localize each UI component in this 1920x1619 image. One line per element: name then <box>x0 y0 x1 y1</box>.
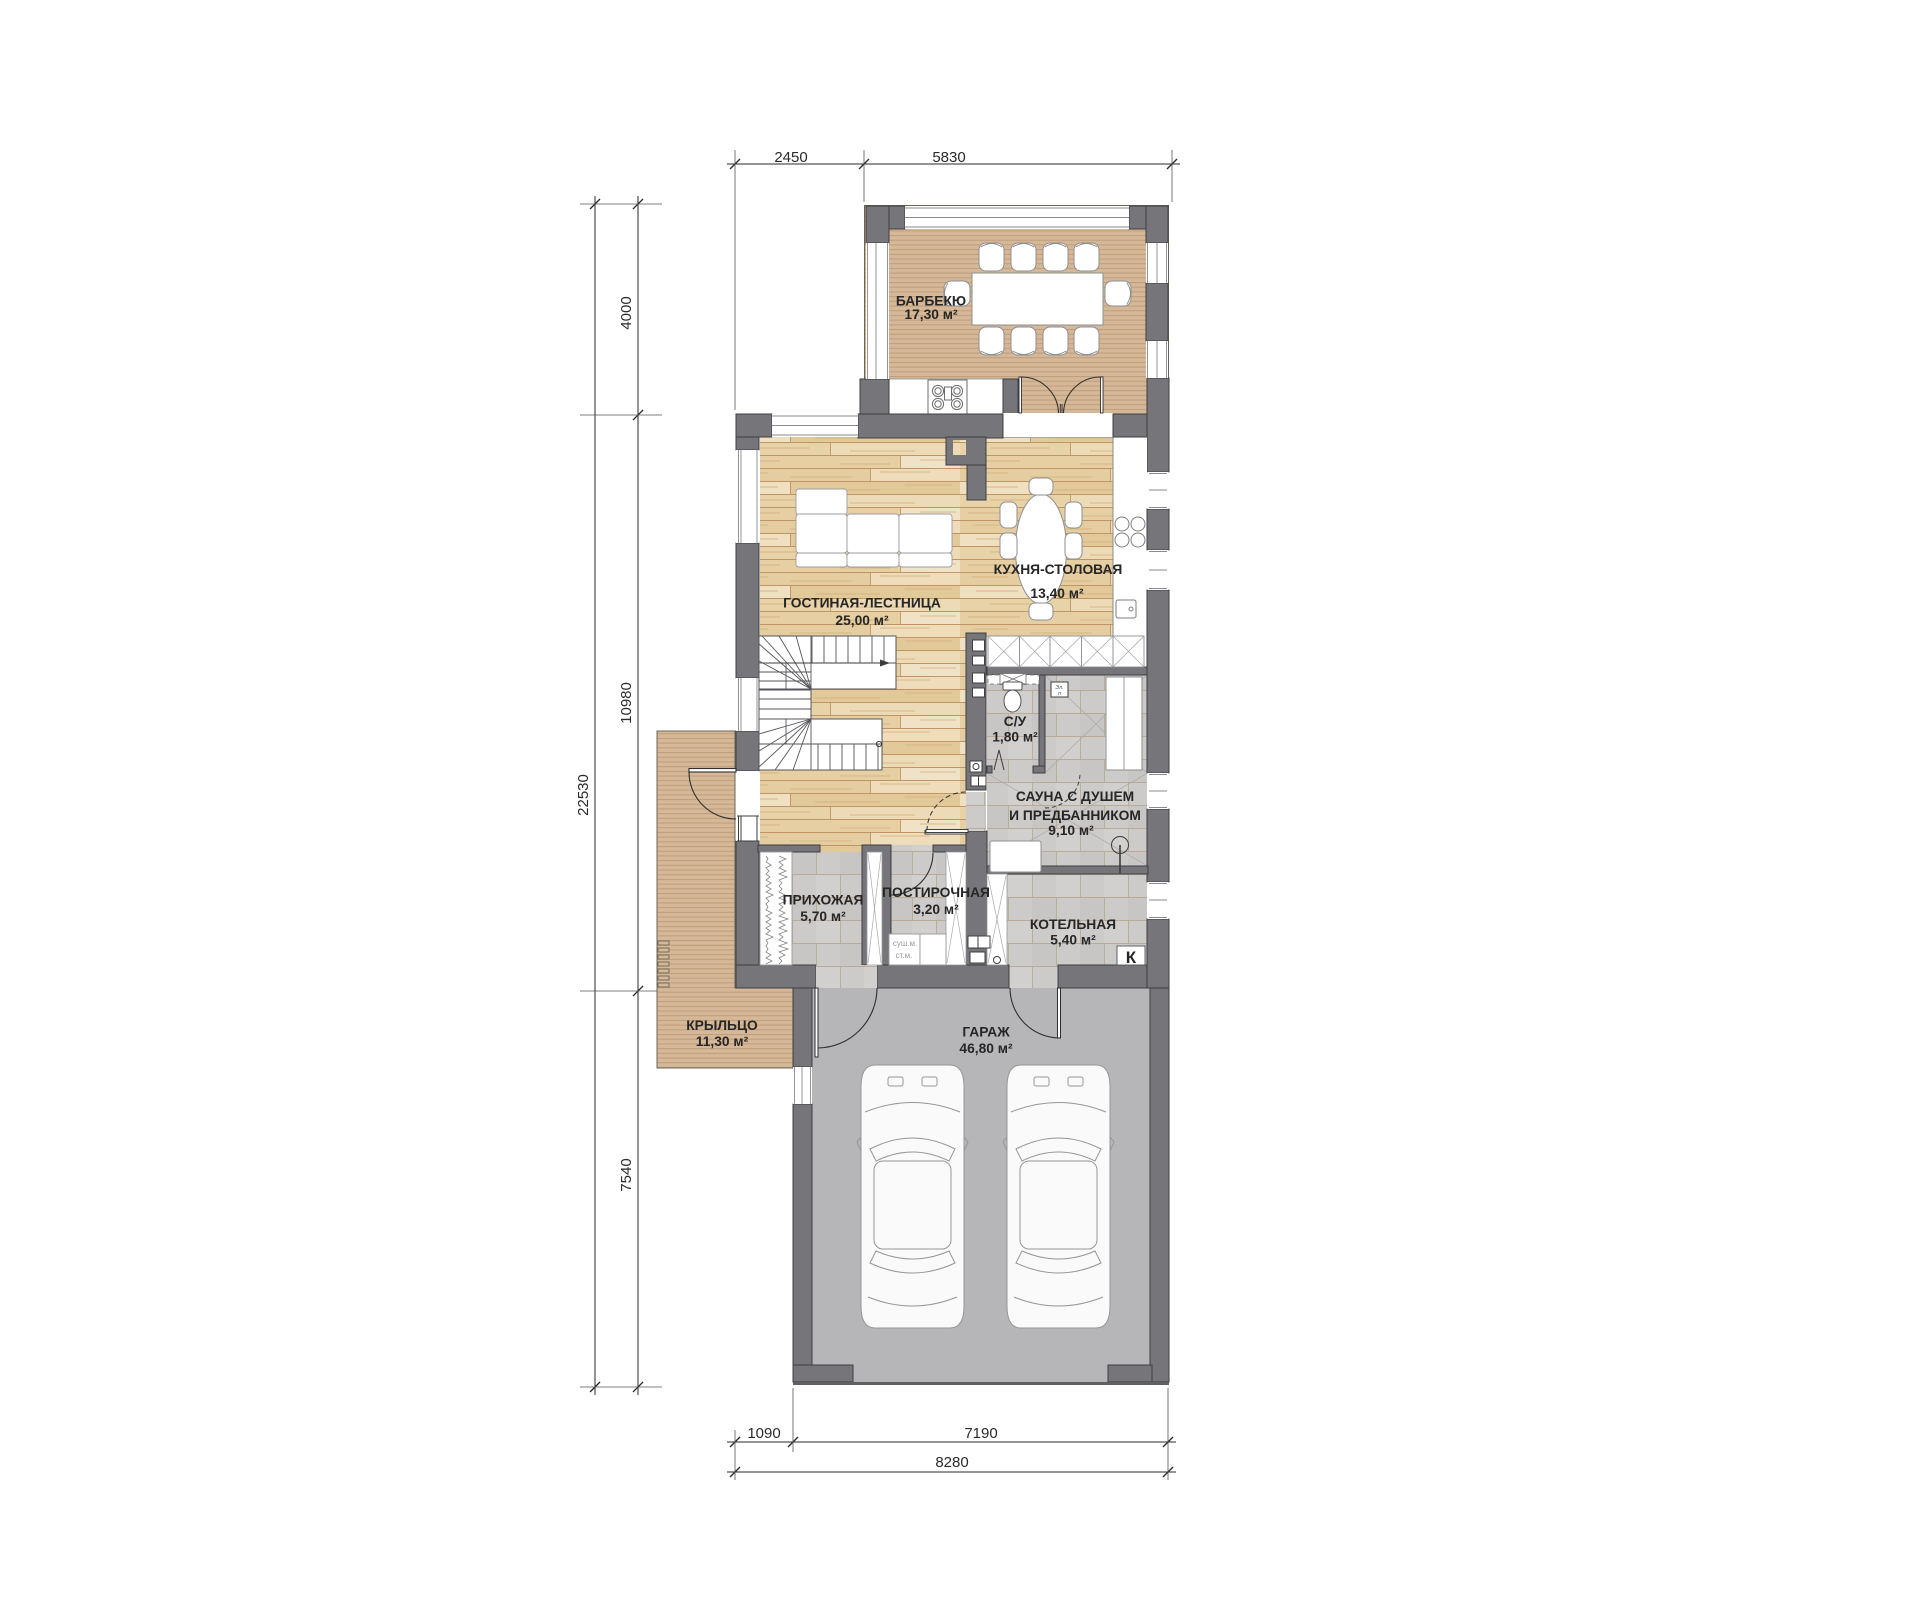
svg-text:22530: 22530 <box>575 774 592 816</box>
svg-text:1,80 м²: 1,80 м² <box>992 730 1038 745</box>
svg-text:2450: 2450 <box>774 149 807 166</box>
svg-text:5830: 5830 <box>932 149 965 166</box>
svg-text:10980: 10980 <box>618 682 635 724</box>
svg-text:С/У: С/У <box>1004 714 1027 729</box>
svg-text:11,30 м²: 11,30 м² <box>696 1034 749 1049</box>
svg-text:13,40 м²: 13,40 м² <box>1030 586 1084 601</box>
svg-text:3,20 м²: 3,20 м² <box>913 902 959 917</box>
svg-text:К: К <box>1126 948 1137 967</box>
svg-text:суш.м.: суш.м. <box>893 939 917 948</box>
svg-text:САУНА С ДУШЕМ: САУНА С ДУШЕМ <box>1016 789 1134 804</box>
svg-text:1090: 1090 <box>747 1425 780 1442</box>
svg-text:КОТЕЛЬНАЯ: КОТЕЛЬНАЯ <box>1030 917 1116 932</box>
svg-text:4000: 4000 <box>618 296 635 329</box>
svg-text:8280: 8280 <box>935 1454 968 1471</box>
svg-text:17,30 м²: 17,30 м² <box>904 307 958 322</box>
svg-text:9,10 м²: 9,10 м² <box>1048 823 1094 838</box>
svg-text:25,00 м²: 25,00 м² <box>835 613 889 628</box>
svg-text:ст.м.: ст.м. <box>896 951 913 960</box>
svg-text:ГОСТИНАЯ-ЛЕСТНИЦА: ГОСТИНАЯ-ЛЕСТНИЦА <box>783 596 941 611</box>
svg-text:7190: 7190 <box>964 1425 997 1442</box>
svg-text:ГАРАЖ: ГАРАЖ <box>962 1025 1010 1040</box>
svg-text:46,80 м²: 46,80 м² <box>959 1041 1013 1056</box>
svg-text:ПОСТИРОЧНАЯ: ПОСТИРОЧНАЯ <box>882 885 990 900</box>
svg-text:И ПРЕДБАННИКОМ: И ПРЕДБАННИКОМ <box>1009 808 1141 823</box>
svg-text:5,70 м²: 5,70 м² <box>800 909 846 924</box>
svg-text:ПРИХОЖАЯ: ПРИХОЖАЯ <box>783 893 864 908</box>
svg-text:7540: 7540 <box>618 1158 635 1191</box>
svg-text:КРЫЛЬЦО: КРЫЛЬЦО <box>686 1018 758 1033</box>
svg-text:КУХНЯ-СТОЛОВАЯ: КУХНЯ-СТОЛОВАЯ <box>994 562 1123 577</box>
svg-text:5,40 м²: 5,40 м² <box>1050 933 1096 948</box>
svg-text:п: п <box>1058 691 1061 697</box>
